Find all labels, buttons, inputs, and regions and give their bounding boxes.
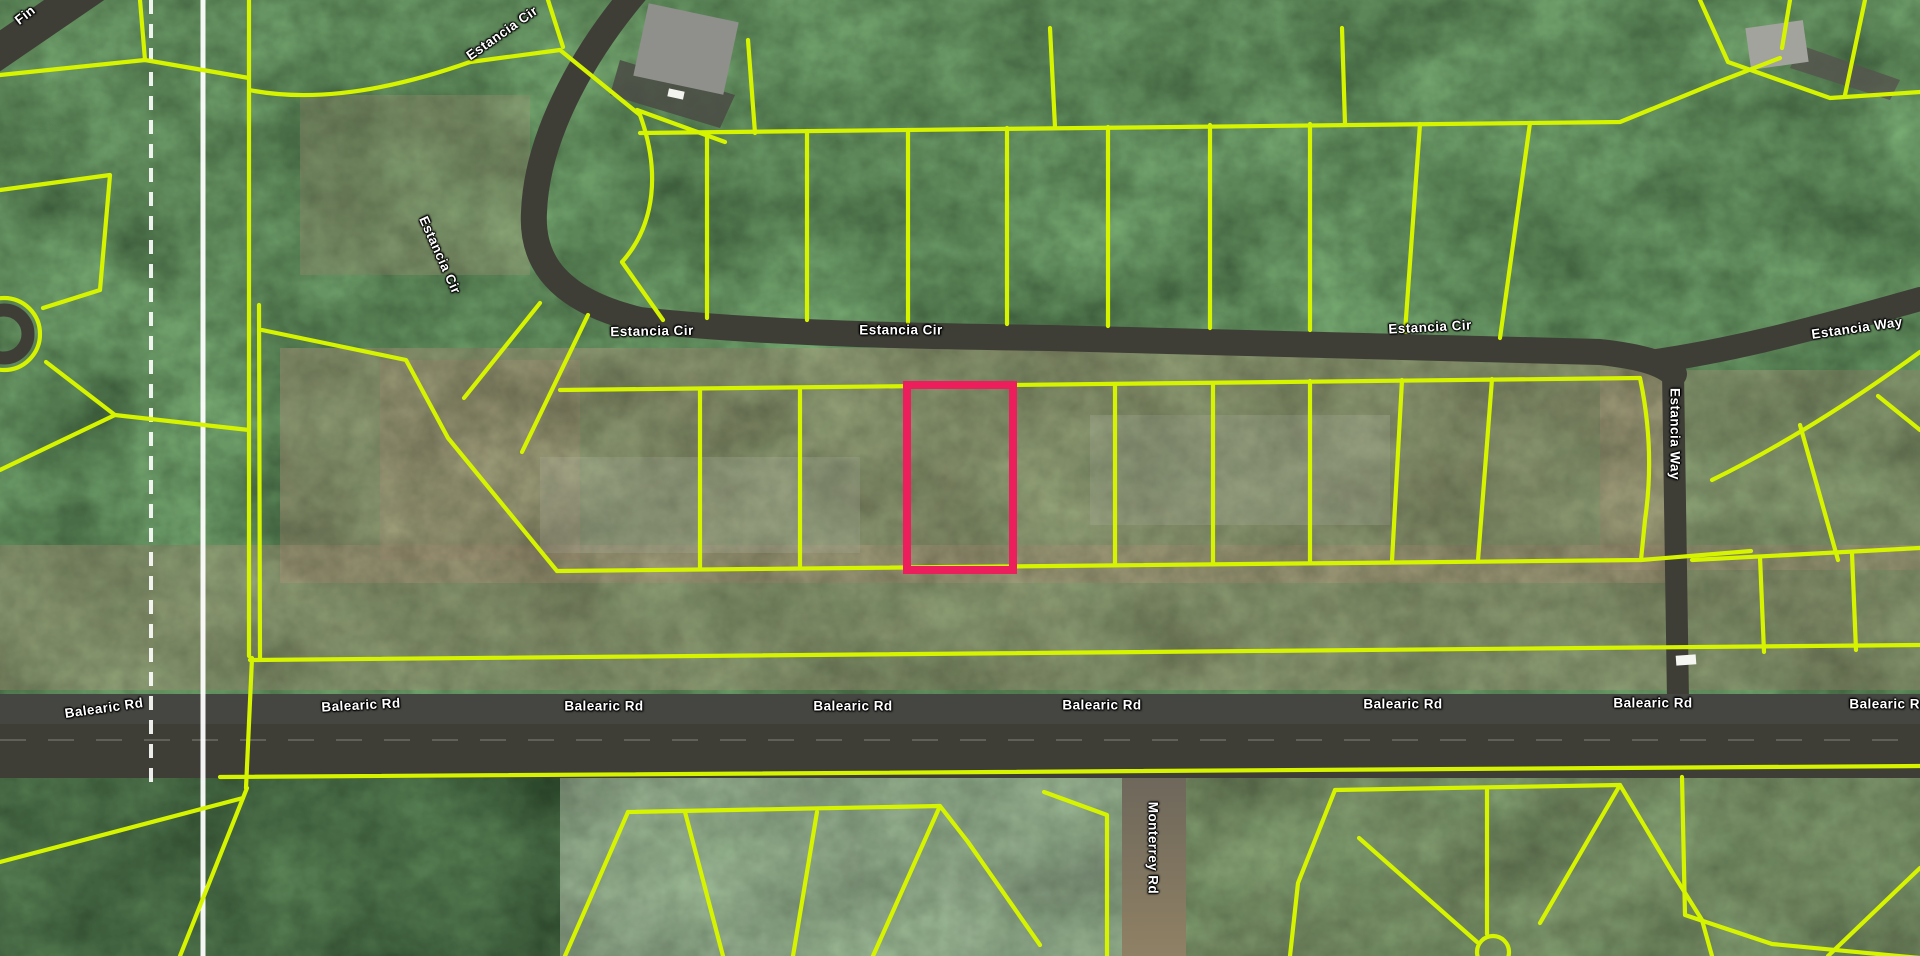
road-label-balearic-7: Balearic Rd xyxy=(1613,696,1692,711)
forest-background xyxy=(0,0,1920,956)
house-top-right xyxy=(1745,20,1808,70)
map-canvas xyxy=(0,0,1920,956)
truck-right-of-way xyxy=(1676,654,1697,665)
road-label-estancia-cir-1: Estancia Cir xyxy=(610,323,694,339)
parcel-line xyxy=(1342,28,1345,124)
road-label-balearic-6: Balearic Rd xyxy=(1363,697,1442,712)
road-label-balearic-4: Balearic Rd xyxy=(813,699,892,714)
road-label-balearic-8: Balearic Rd xyxy=(1849,697,1920,712)
road-label-estancia-way-vertical: Estancia Way xyxy=(1668,388,1683,480)
road-label-estancia-cir-2: Estancia Cir xyxy=(859,323,942,338)
road-label-balearic-3: Balearic Rd xyxy=(564,699,643,714)
parcel-line xyxy=(259,305,260,658)
road-label-monterrey: Monterrey Rd xyxy=(1146,802,1161,894)
satellite-parcel-map[interactable]: Fin Estancia Cir Estancia Cir Estancia C… xyxy=(0,0,1920,956)
road-label-balearic-5: Balearic Rd xyxy=(1062,698,1141,713)
